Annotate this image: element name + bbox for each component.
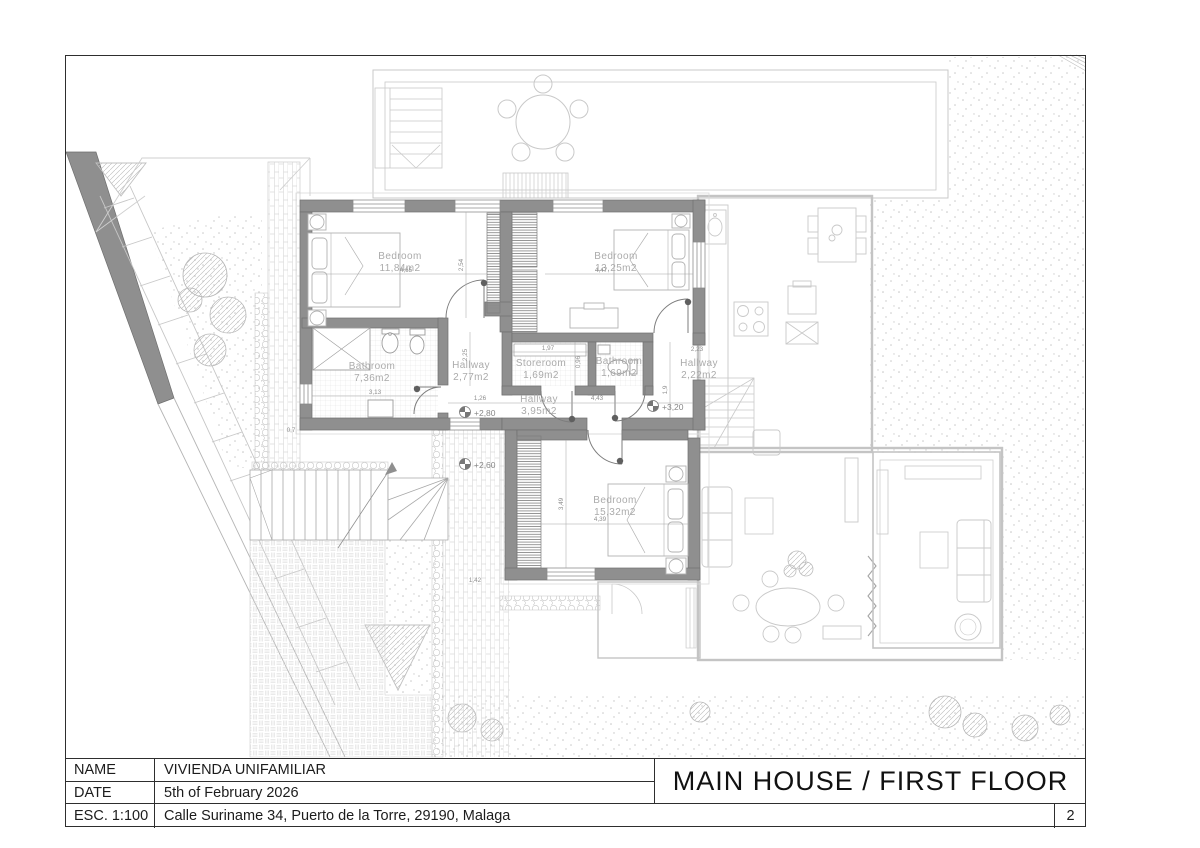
project-address: Calle Suriname 34, Puerto de la Torre, 2…	[155, 804, 1055, 828]
page-number: 2	[1055, 804, 1086, 828]
scale-label: ESC. 1:100	[65, 804, 155, 828]
sheet-border-frame	[65, 55, 1086, 827]
project-date: 5th of February 2026	[155, 782, 655, 804]
project-name: VIVIENDA UNIFAMILIAR	[155, 759, 655, 782]
title-block: NAME VIVIENDA UNIFAMILIAR DATE 5th of Fe…	[65, 758, 1086, 827]
sheet-title: MAIN HOUSE / FIRST FLOOR	[655, 759, 1086, 804]
date-label: DATE	[65, 782, 155, 804]
name-label: NAME	[65, 759, 155, 782]
drawing-sheet: Bedroom 11,84m2 Bedroom 13,25m2 Bathroom…	[0, 0, 1200, 848]
